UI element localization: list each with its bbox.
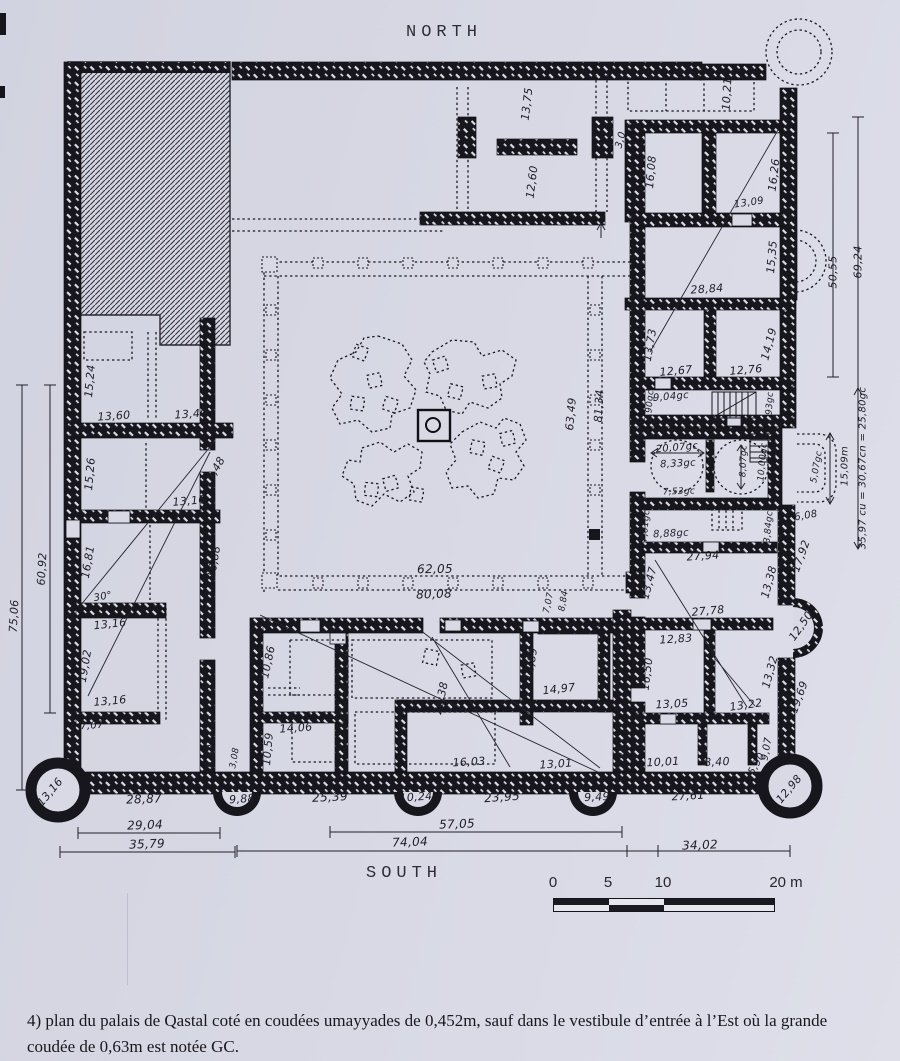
compass-north-label: NORTH <box>406 23 482 42</box>
scanned-floor-plan-page: .wall{fill:url(#wl);stroke:#101014;strok… <box>0 0 900 1061</box>
south-range-walls <box>250 572 644 774</box>
northwest-hatched-block <box>68 62 230 345</box>
scale-bar-segment <box>664 905 774 911</box>
courtyard-rosette <box>330 336 526 506</box>
scale-tick-0: 0 <box>549 874 557 891</box>
caption-line-1: 4) plan du palais de Qastal coté en coud… <box>27 1008 883 1034</box>
compass-south-label: SOUTH <box>366 864 442 883</box>
scale-tick-5: 5 <box>604 874 612 891</box>
scan-edge-marks <box>0 13 6 98</box>
north-range-walls <box>420 117 795 310</box>
scale-bar <box>553 898 775 912</box>
west-range-walls <box>70 318 233 773</box>
scale-bar-segment <box>609 905 664 911</box>
scale-tick-10: 10 <box>655 874 672 891</box>
figure-caption: 4) plan du palais de Qastal coté en coud… <box>27 1008 883 1059</box>
caption-line-2: coudée de 0,63m est notée GC. <box>27 1034 883 1060</box>
scale-bar-segment <box>554 905 609 911</box>
paper-fold-mark <box>127 893 128 985</box>
scale-tick-20m: 20 m <box>769 874 802 891</box>
